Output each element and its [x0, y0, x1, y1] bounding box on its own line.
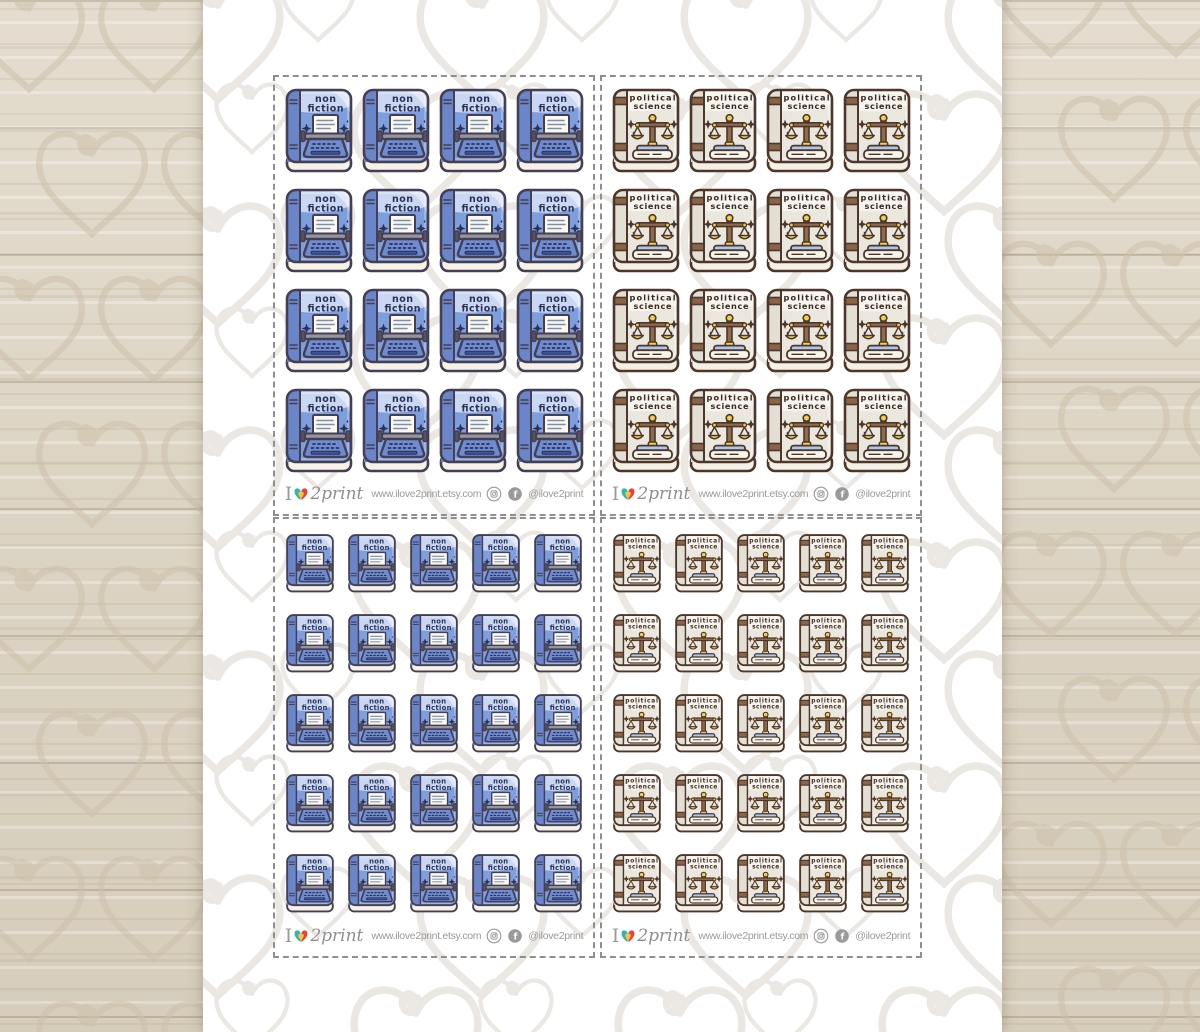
heart-icon	[1050, 80, 1178, 208]
sticker-non-fiction	[347, 853, 397, 917]
facebook-icon: f	[834, 928, 850, 944]
sticker-grid	[275, 533, 593, 917]
sticker-grid	[602, 87, 920, 479]
brand-logo: I 2print	[612, 927, 694, 946]
sticker-political-science	[860, 533, 910, 597]
sticker-political-science	[612, 853, 662, 917]
sticker-political-science	[860, 773, 910, 837]
sticker-political-science	[612, 533, 662, 597]
heart-icon	[1175, 950, 1200, 1032]
branding-footer: I 2print www.ilove2print.etsy.com f @ilo…	[275, 923, 593, 949]
sticker-political-science	[688, 187, 758, 279]
sticker-sheet: I 2print www.ilove2print.etsy.com f @ilo…	[203, 0, 1002, 1032]
wood-hearts-left	[0, 0, 203, 1032]
sticker-political-science	[688, 387, 758, 479]
heart-icon	[935, 856, 1002, 1006]
sticker-political-science	[842, 187, 912, 279]
branding-footer: I 2print www.ilove2print.etsy.com f @ilo…	[275, 481, 593, 507]
heart-icon	[153, 985, 204, 1032]
brand-logo: I 2print	[285, 485, 367, 504]
sticker-non-fiction	[471, 773, 521, 837]
heart-icon	[28, 405, 156, 533]
sticker-non-fiction	[515, 287, 585, 379]
heart-icon	[28, 985, 156, 1032]
sticker-political-science	[860, 613, 910, 677]
brand-heart-icon	[620, 928, 636, 944]
heart-icon	[473, 968, 559, 1032]
sticker-political-science	[688, 287, 758, 379]
instagram-icon	[813, 486, 829, 502]
sticker-non-fiction	[361, 287, 431, 379]
heart-icon	[1112, 515, 1200, 643]
quadrant-bottom-right: I 2print www.ilove2print.etsy.com f @ilo…	[600, 517, 922, 958]
heart-icon	[1112, 0, 1200, 63]
sticker-non-fiction	[284, 187, 354, 279]
sticker-political-science	[765, 87, 835, 179]
sticker-non-fiction	[533, 533, 583, 597]
sticker-non-fiction	[284, 387, 354, 479]
sticker-non-fiction	[515, 387, 585, 479]
facebook-icon: f	[834, 486, 850, 502]
brand-heart-icon	[293, 486, 309, 502]
heart-icon	[1112, 805, 1200, 933]
sticker-political-science	[674, 853, 724, 917]
facebook-icon: f	[507, 486, 523, 502]
brand-logo-prefix: I	[285, 485, 293, 504]
sticker-political-science	[611, 387, 681, 479]
website-text: www.ilove2print.etsy.com	[698, 930, 808, 942]
brand-heart-icon	[620, 486, 636, 502]
sticker-non-fiction	[515, 187, 585, 279]
sticker-political-science	[765, 187, 835, 279]
sticker-political-science	[674, 693, 724, 757]
sticker-political-science	[736, 693, 786, 757]
brand-logo-prefix: I	[612, 485, 620, 504]
sticker-non-fiction	[438, 387, 508, 479]
brand-logo-prefix: I	[285, 927, 293, 946]
brand-logo-prefix: I	[612, 927, 620, 946]
heart-icon	[935, 632, 1002, 782]
sticker-political-science	[736, 773, 786, 837]
heart-icon	[737, 968, 823, 1032]
sticker-political-science	[736, 853, 786, 917]
heart-icon	[1001, 968, 1002, 1032]
sticker-political-science	[765, 287, 835, 379]
sticker-non-fiction	[438, 287, 508, 379]
heart-icon	[935, 408, 1002, 558]
website-text: www.ilove2print.etsy.com	[371, 930, 481, 942]
sticker-political-science	[798, 693, 848, 757]
heart-icon	[1001, 744, 1002, 830]
heart-icon	[28, 115, 156, 243]
heart-icon	[90, 840, 203, 968]
heart-icon	[341, 968, 491, 1032]
heart-icon	[1002, 225, 1115, 353]
instagram-handle-text: @ilove2print	[528, 930, 583, 942]
instagram-icon	[813, 928, 829, 944]
heart-icon	[275, 0, 361, 46]
sticker-non-fiction	[361, 387, 431, 479]
heart-icon	[0, 550, 93, 678]
sticker-political-science	[860, 693, 910, 757]
heart-icon	[209, 968, 295, 1032]
sticker-political-science	[798, 853, 848, 917]
heart-icon	[90, 0, 203, 98]
product-photo: I 2print www.ilove2print.etsy.com f @ilo…	[0, 0, 1200, 1032]
sticker-non-fiction	[409, 613, 459, 677]
sticker-non-fiction	[361, 187, 431, 279]
sticker-political-science	[798, 613, 848, 677]
sticker-political-science	[611, 187, 681, 279]
sticker-non-fiction	[285, 533, 335, 597]
sticker-political-science	[842, 287, 912, 379]
sticker-political-science	[674, 613, 724, 677]
sticker-political-science	[736, 613, 786, 677]
sticker-grid	[602, 533, 920, 917]
sticker-non-fiction	[438, 187, 508, 279]
quadrant-bottom-left: I 2print www.ilove2print.etsy.com f @ilo…	[273, 517, 595, 958]
brand-logo: I 2print	[285, 927, 367, 946]
sticker-political-science	[798, 773, 848, 837]
sticker-non-fiction	[409, 533, 459, 597]
heart-icon	[0, 260, 93, 388]
sticker-grid	[275, 87, 593, 479]
sticker-non-fiction	[533, 613, 583, 677]
heart-icon	[90, 260, 203, 388]
heart-icon	[539, 0, 625, 46]
heart-icon	[1050, 370, 1178, 498]
sticker-political-science	[842, 387, 912, 479]
heart-icon	[803, 0, 889, 46]
sticker-non-fiction	[285, 613, 335, 677]
heart-icon	[90, 550, 203, 678]
heart-icon	[869, 968, 1002, 1032]
sticker-political-science	[611, 87, 681, 179]
sticker-non-fiction	[285, 693, 335, 757]
instagram-icon	[486, 928, 502, 944]
sticker-non-fiction	[284, 87, 354, 179]
heart-icon	[1001, 296, 1002, 382]
website-text: www.ilove2print.etsy.com	[371, 488, 481, 500]
brand-logo-suffix: 2print	[310, 486, 363, 503]
heart-icon	[28, 695, 156, 823]
brand-logo: I 2print	[612, 485, 694, 504]
sticker-non-fiction	[347, 773, 397, 837]
wood-hearts-right	[1002, 0, 1200, 1032]
sticker-non-fiction	[409, 853, 459, 917]
sticker-non-fiction	[533, 853, 583, 917]
sticker-non-fiction	[347, 693, 397, 757]
sticker-political-science	[688, 87, 758, 179]
quadrant-top-left: I 2print www.ilove2print.etsy.com f @ilo…	[273, 75, 595, 516]
sticker-non-fiction	[285, 853, 335, 917]
heart-icon	[1001, 520, 1002, 606]
svg-text:f: f	[514, 932, 518, 942]
sticker-non-fiction	[515, 87, 585, 179]
brand-heart-icon	[293, 928, 309, 944]
heart-icon	[1001, 72, 1002, 158]
sticker-political-science	[765, 387, 835, 479]
sticker-non-fiction	[471, 533, 521, 597]
sticker-non-fiction	[471, 853, 521, 917]
facebook-icon: f	[507, 928, 523, 944]
brand-logo-suffix: 2print	[637, 486, 690, 503]
heart-icon	[153, 695, 204, 823]
sticker-political-science	[674, 773, 724, 837]
sticker-political-science	[736, 533, 786, 597]
website-text: www.ilove2print.etsy.com	[698, 488, 808, 500]
sticker-political-science	[612, 693, 662, 757]
heart-icon	[153, 115, 204, 243]
heart-icon	[1175, 660, 1200, 788]
sticker-non-fiction	[409, 773, 459, 837]
sticker-political-science	[612, 613, 662, 677]
sticker-non-fiction	[347, 613, 397, 677]
sticker-non-fiction	[347, 533, 397, 597]
sticker-non-fiction	[285, 773, 335, 837]
heart-icon	[1002, 0, 1115, 63]
sticker-political-science	[842, 87, 912, 179]
svg-text:f: f	[841, 932, 845, 942]
heart-icon	[605, 968, 755, 1032]
heart-icon	[1002, 805, 1115, 933]
heart-icon	[1175, 80, 1200, 208]
brand-logo-suffix: 2print	[637, 928, 690, 945]
heart-icon	[153, 405, 204, 533]
heart-icon	[1050, 660, 1178, 788]
sticker-non-fiction	[361, 87, 431, 179]
svg-text:f: f	[841, 490, 845, 500]
sticker-political-science	[674, 533, 724, 597]
heart-icon	[1175, 370, 1200, 498]
sticker-political-science	[612, 773, 662, 837]
sticker-non-fiction	[471, 693, 521, 757]
quadrant-top-right: I 2print www.ilove2print.etsy.com f @ilo…	[600, 75, 922, 516]
instagram-handle-text: @ilove2print	[855, 488, 910, 500]
sticker-political-science	[798, 533, 848, 597]
brand-logo-suffix: 2print	[310, 928, 363, 945]
branding-footer: I 2print www.ilove2print.etsy.com f @ilo…	[602, 481, 920, 507]
heart-icon	[1112, 225, 1200, 353]
heart-icon	[1002, 515, 1115, 643]
sticker-non-fiction	[533, 773, 583, 837]
svg-text:f: f	[514, 490, 518, 500]
sticker-non-fiction	[284, 287, 354, 379]
sticker-political-science	[611, 287, 681, 379]
sticker-non-fiction	[471, 613, 521, 677]
sticker-non-fiction	[533, 693, 583, 757]
sticker-political-science	[860, 853, 910, 917]
sticker-non-fiction	[409, 693, 459, 757]
heart-icon	[1050, 950, 1178, 1032]
heart-icon	[0, 840, 93, 968]
sticker-non-fiction	[438, 87, 508, 179]
instagram-icon	[486, 486, 502, 502]
instagram-handle-text: @ilove2print	[855, 930, 910, 942]
heart-icon	[935, 184, 1002, 334]
branding-footer: I 2print www.ilove2print.etsy.com f @ilo…	[602, 923, 920, 949]
instagram-handle-text: @ilove2print	[528, 488, 583, 500]
heart-icon	[935, 0, 1002, 110]
heart-icon	[0, 0, 93, 98]
